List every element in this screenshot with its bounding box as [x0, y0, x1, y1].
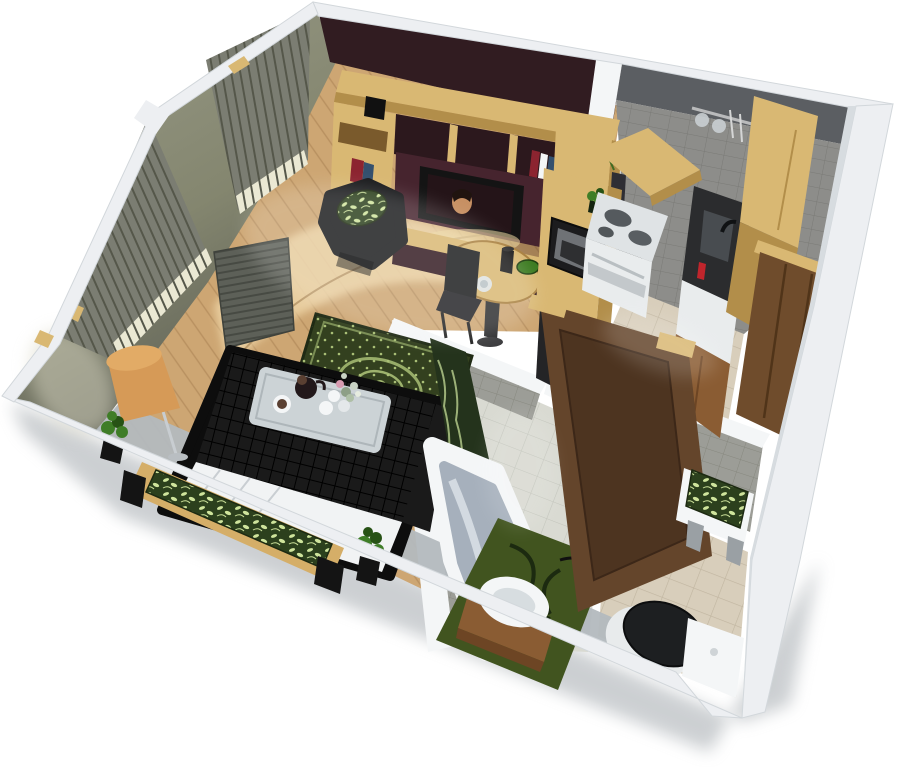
floorplan-render: [0, 0, 897, 768]
speaker: [364, 96, 386, 120]
floorplan-canvas: [0, 0, 897, 768]
tray-vase: [338, 400, 350, 412]
cup: [319, 401, 333, 415]
